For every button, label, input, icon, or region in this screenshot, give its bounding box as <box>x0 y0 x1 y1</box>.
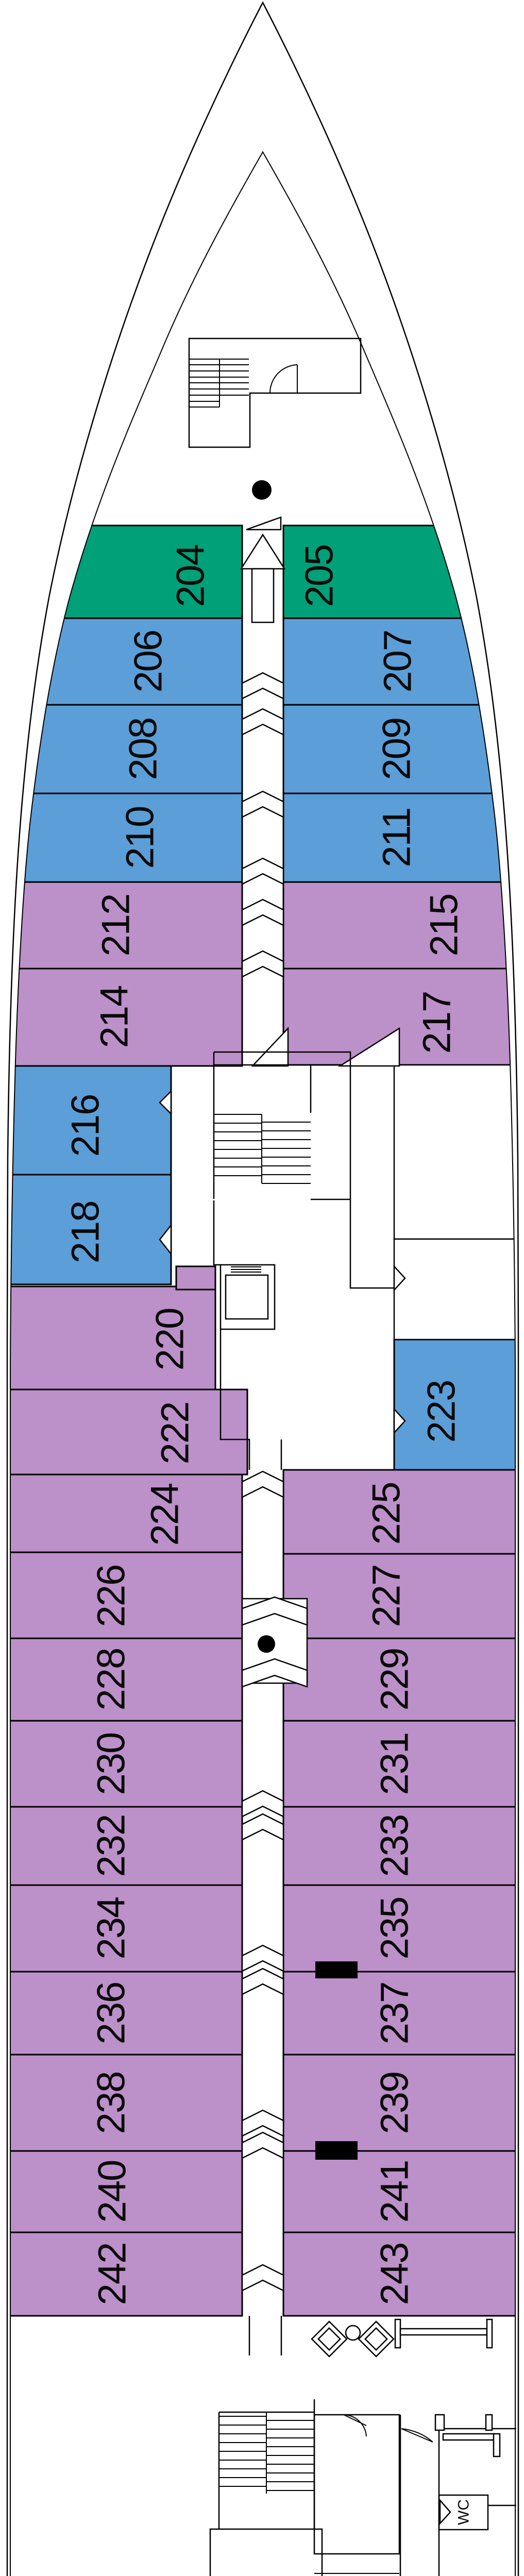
cabin-number-242: 242 <box>91 2243 134 2306</box>
cabin-number-210: 210 <box>119 807 162 869</box>
sofa-back <box>443 2434 495 2440</box>
service-room-aft <box>394 1239 524 1340</box>
cabin-number-217: 217 <box>415 992 459 1054</box>
cabin-number-211: 211 <box>375 808 419 867</box>
cabin-number-206: 206 <box>127 631 171 693</box>
cabin-number-222: 222 <box>154 1402 197 1465</box>
cabin-number-208: 208 <box>122 718 165 781</box>
cabin-number-214: 214 <box>93 986 137 1048</box>
bench-right-post <box>487 2319 492 2348</box>
cabin-220-step <box>176 1266 215 1290</box>
corridor-bulge <box>242 1597 307 1687</box>
cabin-number-212: 212 <box>94 894 138 957</box>
cabin-number-241: 241 <box>373 2161 417 2223</box>
cabin-number-231: 231 <box>373 1733 417 1795</box>
jamb-2 <box>486 2415 492 2430</box>
cabin-number-234: 234 <box>90 1897 133 1960</box>
cabin-number-237: 237 <box>373 1982 417 2045</box>
cabin-number-209: 209 <box>375 718 419 781</box>
cabin-number-220: 220 <box>148 1309 192 1371</box>
cabin-number-227: 227 <box>365 1565 409 1628</box>
cabin-number-216: 216 <box>64 1095 108 1157</box>
mast-dot-forward <box>252 480 272 500</box>
cabin-number-226: 226 <box>90 1565 133 1628</box>
cabin-number-235: 235 <box>373 1897 417 1960</box>
cabin-number-224: 224 <box>143 1483 187 1546</box>
cabin-number-229: 229 <box>373 1649 417 1711</box>
cabin-217[interactable] <box>283 969 524 1065</box>
cabin-number-239: 239 <box>373 2072 417 2134</box>
cabin-222[interactable] <box>0 1389 247 1475</box>
cabin-224[interactable] <box>0 1475 242 1552</box>
cabin-number-225: 225 <box>365 1483 409 1545</box>
cabin-number-228: 228 <box>90 1649 133 1711</box>
cabin-215[interactable] <box>283 882 524 969</box>
bench-left-post <box>395 2319 400 2348</box>
cabin-number-233: 233 <box>373 1815 417 1877</box>
cabin-number-230: 230 <box>90 1733 133 1795</box>
cabin-number-207: 207 <box>376 631 420 693</box>
cabin-number-215: 215 <box>422 894 466 957</box>
cabin-number-238: 238 <box>90 2072 133 2134</box>
cabin-number-232: 232 <box>90 1815 133 1877</box>
cabin-number-205: 205 <box>298 545 342 607</box>
jamb-1 <box>435 2415 444 2430</box>
cabin-number-243: 243 <box>373 2243 417 2306</box>
cabin-number-218: 218 <box>64 1201 108 1264</box>
service-block-1 <box>315 1961 358 1978</box>
deck-plan: WC WC 2042052062072082092102112122152142… <box>0 0 524 2576</box>
service-block-2 <box>315 2141 358 2160</box>
mast-dot-mid <box>258 1635 275 1653</box>
side-table <box>346 2326 360 2340</box>
cabin-number-236: 236 <box>90 1982 133 2045</box>
cabin-number-240: 240 <box>91 2161 134 2223</box>
wc-label-1: WC <box>455 2499 472 2525</box>
service-room-forward <box>394 1065 524 1239</box>
sofa-arm <box>494 2434 500 2456</box>
cabin-number-223: 223 <box>420 1381 464 1443</box>
cabin-number-204: 204 <box>169 545 213 607</box>
bench-top <box>400 2329 487 2335</box>
